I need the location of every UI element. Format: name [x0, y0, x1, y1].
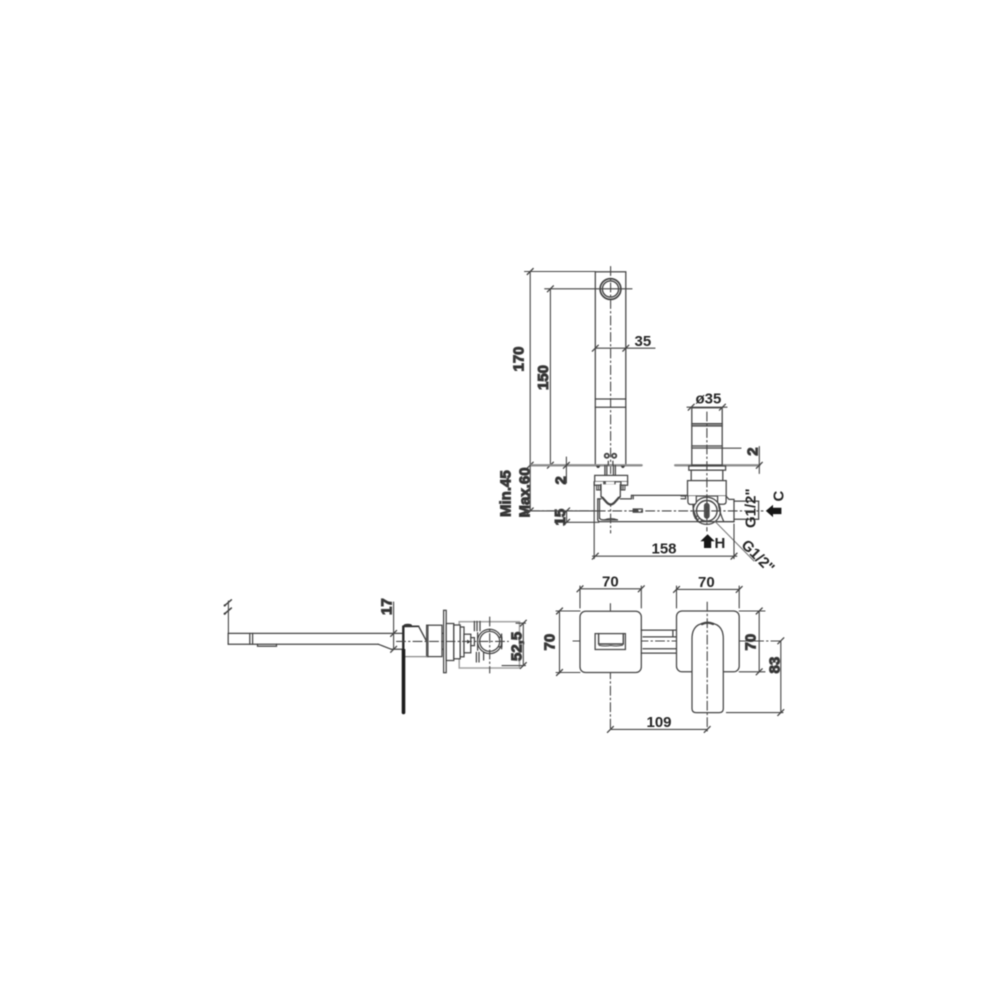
svg-text:70: 70: [743, 634, 760, 651]
svg-text:G1/2": G1/2": [743, 488, 760, 528]
svg-text:35: 35: [635, 333, 652, 350]
svg-text:G1/2": G1/2": [738, 537, 778, 577]
svg-text:70: 70: [542, 634, 559, 651]
svg-text:109: 109: [647, 714, 672, 731]
svg-text:83: 83: [767, 657, 784, 674]
svg-text:17: 17: [379, 598, 396, 615]
svg-text:52,5: 52,5: [509, 632, 526, 661]
svg-text:70: 70: [602, 574, 619, 591]
svg-text:2: 2: [553, 476, 570, 484]
svg-text:150: 150: [535, 365, 552, 390]
svg-text:C: C: [771, 491, 788, 502]
svg-text:ø35: ø35: [696, 391, 722, 408]
svg-text:158: 158: [652, 541, 677, 558]
svg-text:170: 170: [511, 346, 528, 371]
svg-text:Max.60: Max.60: [517, 467, 534, 517]
svg-text:2: 2: [745, 447, 762, 455]
svg-text:70: 70: [698, 574, 715, 591]
svg-text:H: H: [715, 535, 726, 552]
svg-text:Min.45: Min.45: [498, 470, 515, 517]
